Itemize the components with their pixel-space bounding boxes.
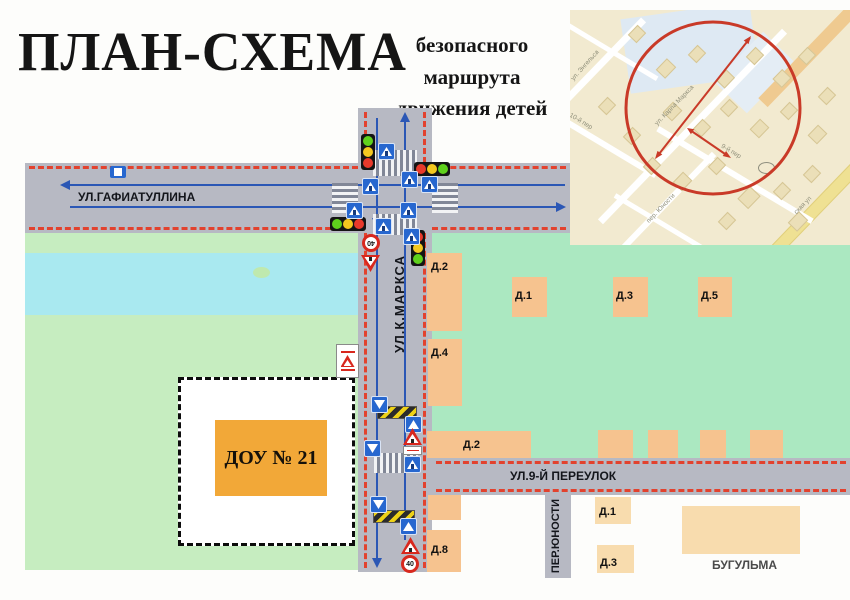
speed-limit-40-sign-icon: 40 [401,555,419,573]
building-label: Д.1 [599,506,616,518]
kindergarten-label: ДОУ № 21 [225,447,318,470]
subtitle-line-1: безопасного маршрута [372,30,572,93]
building-label: Д.3 [600,557,617,569]
building-label: Д.2 [463,439,480,451]
pedestrian-crossing-sign-icon [375,218,392,235]
building [648,430,678,458]
traffic-light-icon [414,162,450,176]
children-warning-sign-plate-icon [336,344,359,378]
building [750,430,783,458]
speed-limit-value: 40 [367,240,375,247]
plan-scheme-map: ПЛАН-СХЕМА безопасного маршрута движения… [0,0,850,600]
lane-line [70,206,558,208]
water-strip [25,253,358,315]
speed-bump-sign-icon [400,518,417,535]
building-bugulma [682,506,800,554]
speed-limit-value: 40 [406,561,414,568]
lane-line [70,184,565,186]
page-title: ПЛАН-СХЕМА [18,20,407,83]
pedestrian-crossing-sign-icon [362,178,379,195]
arrow-down-icon [372,558,382,568]
red-lens [363,158,373,168]
building-d8: Д.8 [427,530,461,572]
building-label: Д.2 [431,261,448,273]
street-label-gafiatullina: УЛ.ГАФИАТУЛЛИНА [78,190,195,204]
building [428,495,461,520]
building-d2-upper: Д.2 [427,253,462,331]
building [700,430,726,458]
building [598,430,633,458]
bus-stop-sign-icon [110,166,126,178]
building-d1-lower: Д.1 [595,497,631,524]
street-label-9-pereulok: УЛ.9-Й ПЕРЕУЛОК [510,469,616,483]
speed-bump-sign-icon [364,440,381,457]
bugulma-label: БУГУЛЬМА [712,558,777,572]
building-d5-upper: Д.5 [698,277,732,317]
building-label: Д.5 [701,290,718,302]
building-d1-upper: Д.1 [512,277,547,317]
building-label: Д.8 [431,544,448,556]
route-dash [432,227,566,230]
building-label: Д.3 [616,290,633,302]
arrow-right-icon [556,202,566,212]
green-lens [363,136,373,146]
pedestrian-crossing-sign-icon [401,171,418,188]
inset-highlight-overlay [570,10,850,245]
street-label-yunosti: ПЕР.ЮНОСТИ [550,499,562,573]
water-island [253,267,270,278]
arrow-left-icon [60,180,70,190]
route-dash [29,227,358,230]
yellow-lens [363,147,373,157]
building-d4: Д.4 [428,339,462,406]
green-lens [413,254,423,264]
traffic-light-icon [330,217,366,231]
building-d3-lower: Д.3 [597,545,634,573]
building-label: Д.1 [515,290,532,302]
speed-limit-40-sign-icon: 40 [362,234,380,252]
pedestrian-crossing-sign-icon [403,228,420,245]
kindergarten-plot: ДОУ № 21 [178,377,355,546]
route-dash [423,112,426,163]
route-dash [436,489,846,492]
building-d3-upper: Д.3 [613,277,648,317]
pedestrian-crossing-sign-icon [378,143,395,160]
yellow-lens [343,219,353,229]
pedestrian-crossing-sign-icon [404,456,421,473]
route-dash [436,461,846,464]
pedestrian-crossing-sign-icon [400,202,417,219]
pedestrian-crossing-sign-icon [421,176,438,193]
speed-bump-sign-icon [371,396,388,413]
route-dash [364,233,367,568]
speed-bump-sign-icon [370,496,387,513]
children-warning-sign-plate-icon [403,428,422,455]
route-dash [423,233,426,568]
traffic-light-icon [361,134,375,170]
kindergarten-building: ДОУ № 21 [215,420,327,496]
route-dash [432,166,566,169]
red-lens [354,219,364,229]
pedestrian-crossing-sign-icon [346,202,363,219]
route-dash [29,166,358,169]
green-lens [332,219,342,229]
building-d2-mid: Д.2 [427,431,531,458]
building-label: Д.4 [431,347,448,359]
inset-city-map: ул. Энгельса 10-й пер ул. Карла Маркса 9… [570,10,850,245]
yellow-lens [427,164,437,174]
arrow-up-icon [400,112,410,122]
green-area-right [432,233,850,458]
green-lens [438,164,448,174]
street-label-k-marksa: УЛ.К.МАРКСА [392,255,407,353]
